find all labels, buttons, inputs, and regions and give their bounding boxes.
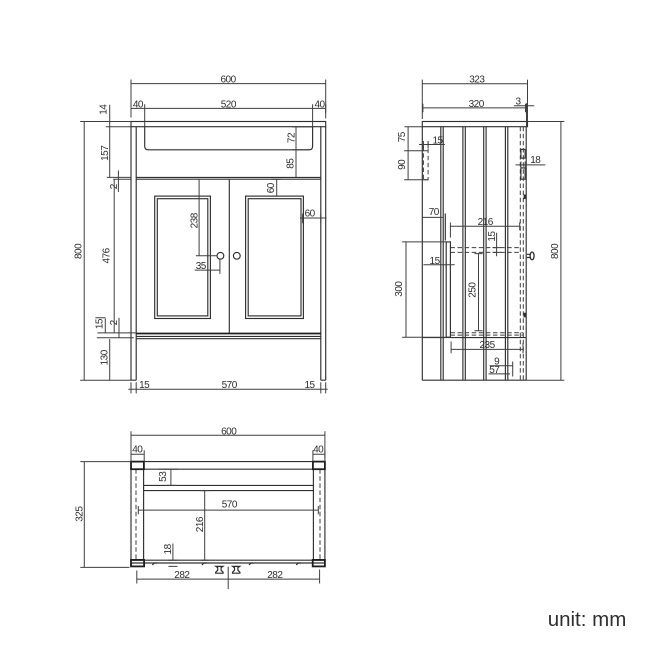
svg-text:216: 216 bbox=[195, 516, 206, 532]
svg-text:325: 325 bbox=[75, 506, 86, 522]
svg-text:14: 14 bbox=[99, 104, 110, 115]
svg-text:60: 60 bbox=[305, 209, 316, 220]
svg-text:unit: mm: unit: mm bbox=[548, 608, 627, 631]
svg-text:72: 72 bbox=[286, 132, 297, 143]
svg-text:57: 57 bbox=[489, 365, 500, 376]
svg-text:15: 15 bbox=[430, 256, 441, 267]
svg-text:40: 40 bbox=[133, 99, 144, 110]
svg-text:800: 800 bbox=[550, 243, 561, 259]
svg-text:90: 90 bbox=[397, 159, 408, 170]
svg-text:40: 40 bbox=[313, 445, 324, 456]
svg-text:15: 15 bbox=[487, 231, 498, 242]
svg-text:238: 238 bbox=[190, 212, 201, 228]
svg-text:53: 53 bbox=[158, 471, 169, 482]
svg-text:600: 600 bbox=[221, 74, 237, 85]
svg-text:40: 40 bbox=[132, 445, 143, 456]
svg-text:282: 282 bbox=[267, 570, 283, 581]
svg-text:75: 75 bbox=[397, 131, 408, 142]
svg-text:130: 130 bbox=[99, 349, 110, 365]
svg-text:323: 323 bbox=[469, 75, 485, 86]
svg-text:282: 282 bbox=[174, 570, 190, 581]
svg-text:570: 570 bbox=[222, 500, 238, 511]
svg-text:800: 800 bbox=[74, 243, 85, 259]
svg-text:40: 40 bbox=[314, 99, 325, 110]
svg-text:18: 18 bbox=[530, 155, 541, 166]
svg-text:600: 600 bbox=[221, 426, 237, 437]
svg-text:15: 15 bbox=[95, 318, 106, 329]
svg-text:60: 60 bbox=[266, 182, 277, 193]
svg-text:15: 15 bbox=[139, 380, 150, 391]
svg-text:35: 35 bbox=[196, 261, 207, 272]
svg-text:235: 235 bbox=[480, 340, 496, 351]
svg-text:476: 476 bbox=[101, 247, 112, 263]
svg-text:157: 157 bbox=[100, 145, 111, 161]
svg-text:15: 15 bbox=[304, 380, 315, 391]
svg-text:18: 18 bbox=[163, 543, 174, 554]
svg-text:216: 216 bbox=[478, 217, 494, 228]
svg-text:320: 320 bbox=[469, 99, 485, 110]
svg-text:70: 70 bbox=[429, 207, 440, 218]
svg-text:300: 300 bbox=[394, 281, 405, 297]
svg-text:570: 570 bbox=[222, 380, 238, 391]
svg-text:15: 15 bbox=[432, 135, 443, 146]
svg-text:520: 520 bbox=[221, 99, 237, 110]
svg-text:250: 250 bbox=[468, 282, 479, 298]
svg-text:85: 85 bbox=[285, 158, 296, 169]
